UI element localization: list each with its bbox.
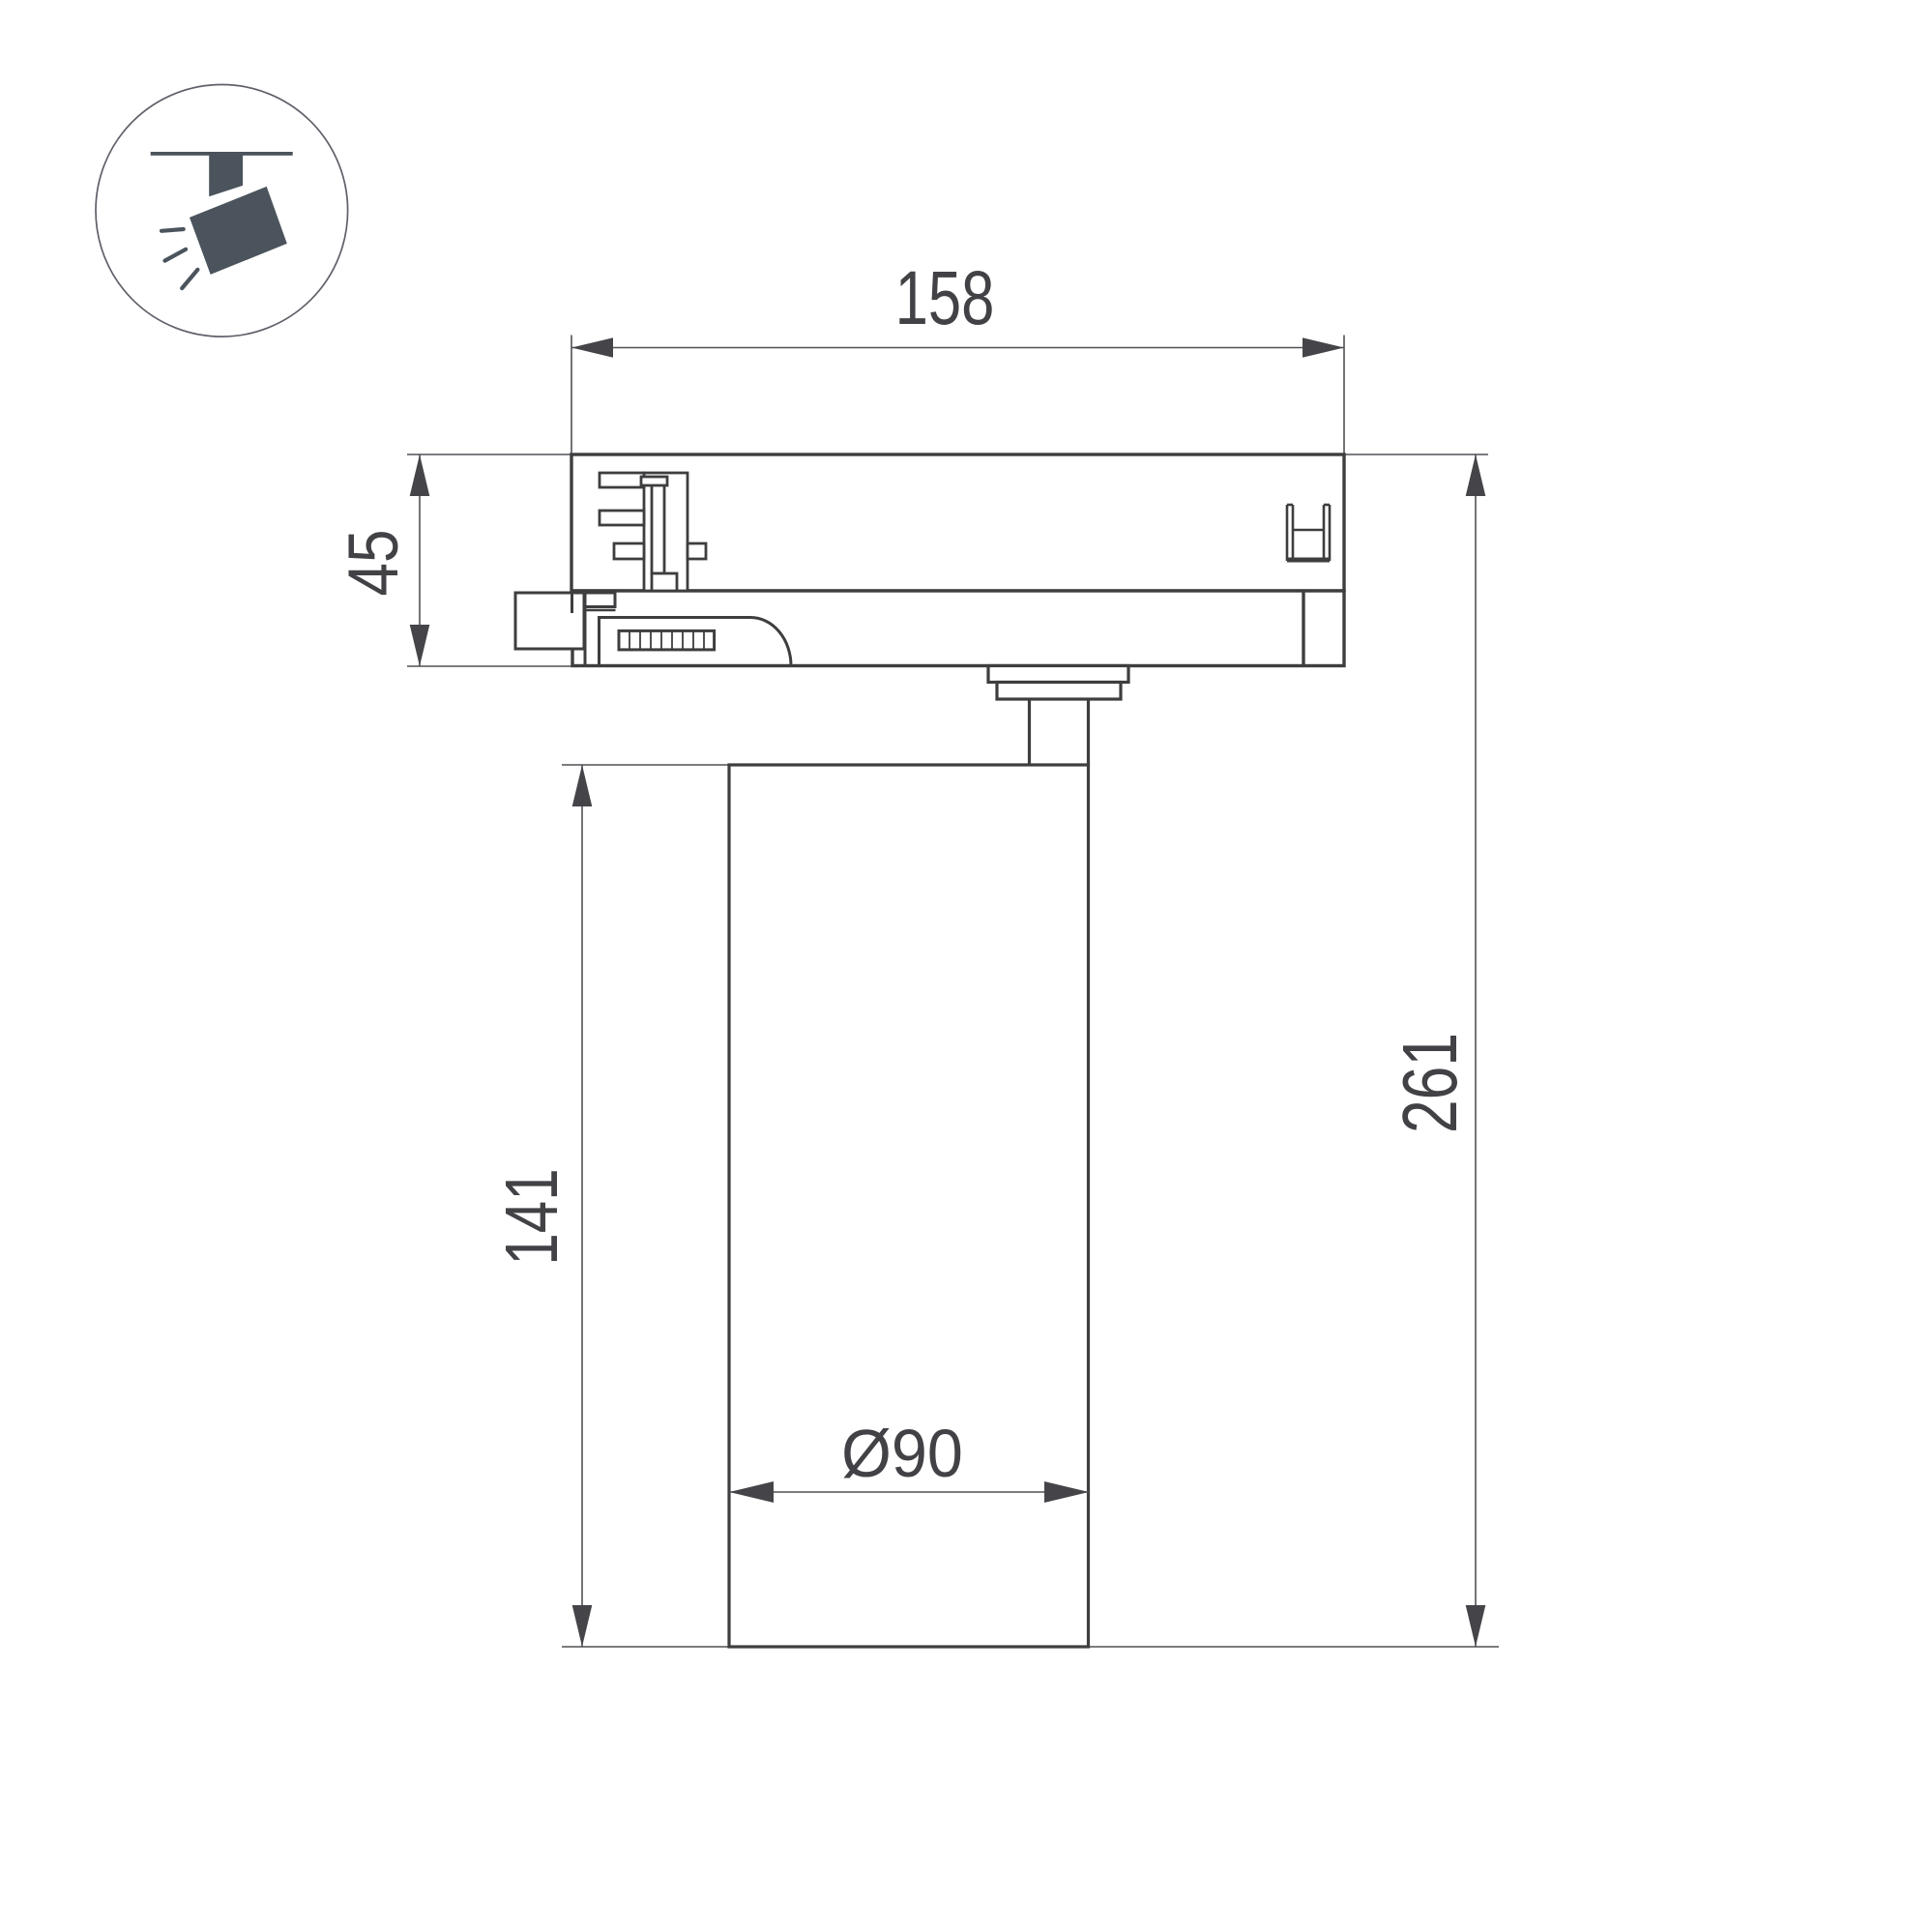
svg-text:261: 261 [1388,1033,1474,1133]
svg-text:45: 45 [335,529,413,596]
svg-text:Ø90: Ø90 [841,1416,963,1491]
svg-text:158: 158 [895,256,995,341]
svg-text:141: 141 [489,1168,573,1265]
